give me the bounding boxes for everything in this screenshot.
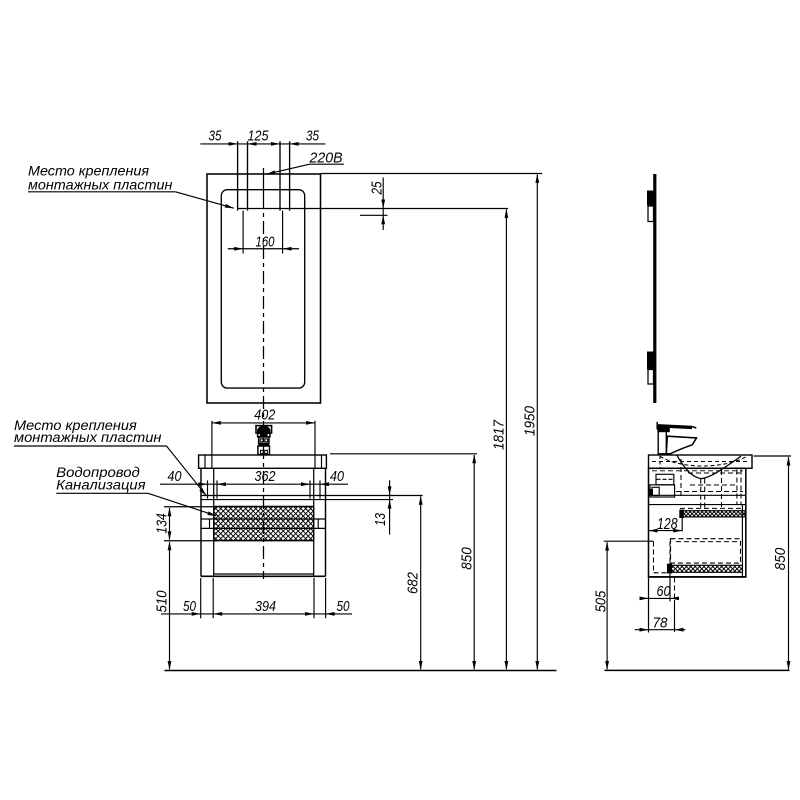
svg-text:125: 125 bbox=[248, 129, 270, 145]
svg-text:160: 160 bbox=[256, 234, 275, 250]
svg-text:13: 13 bbox=[373, 513, 389, 526]
svg-text:Место крепления: Место крепления bbox=[28, 164, 150, 179]
svg-text:25: 25 bbox=[370, 181, 386, 196]
svg-text:362: 362 bbox=[255, 469, 276, 485]
svg-text:монтажных пластин: монтажных пластин bbox=[28, 177, 173, 192]
svg-text:монтажных пластин: монтажных пластин bbox=[14, 430, 162, 445]
svg-text:394: 394 bbox=[255, 599, 276, 615]
svg-text:50: 50 bbox=[183, 599, 196, 615]
svg-text:510: 510 bbox=[154, 591, 170, 613]
svg-text:50: 50 bbox=[337, 599, 350, 615]
svg-text:40: 40 bbox=[330, 469, 344, 485]
svg-text:78: 78 bbox=[653, 616, 669, 632]
svg-text:850: 850 bbox=[773, 548, 789, 571]
svg-text:35: 35 bbox=[209, 129, 223, 145]
svg-text:1817: 1817 bbox=[492, 419, 508, 450]
svg-text:402: 402 bbox=[254, 407, 275, 423]
svg-text:Канализация: Канализация bbox=[56, 477, 146, 492]
svg-text:60: 60 bbox=[657, 584, 671, 600]
svg-text:35: 35 bbox=[306, 129, 320, 145]
svg-text:850: 850 bbox=[460, 547, 476, 570]
svg-text:505: 505 bbox=[593, 590, 609, 612]
svg-text:40: 40 bbox=[168, 469, 182, 485]
svg-text:1950: 1950 bbox=[522, 406, 538, 436]
svg-text:682: 682 bbox=[406, 572, 422, 594]
svg-text:134: 134 bbox=[154, 513, 170, 534]
svg-text:128: 128 bbox=[657, 516, 678, 533]
